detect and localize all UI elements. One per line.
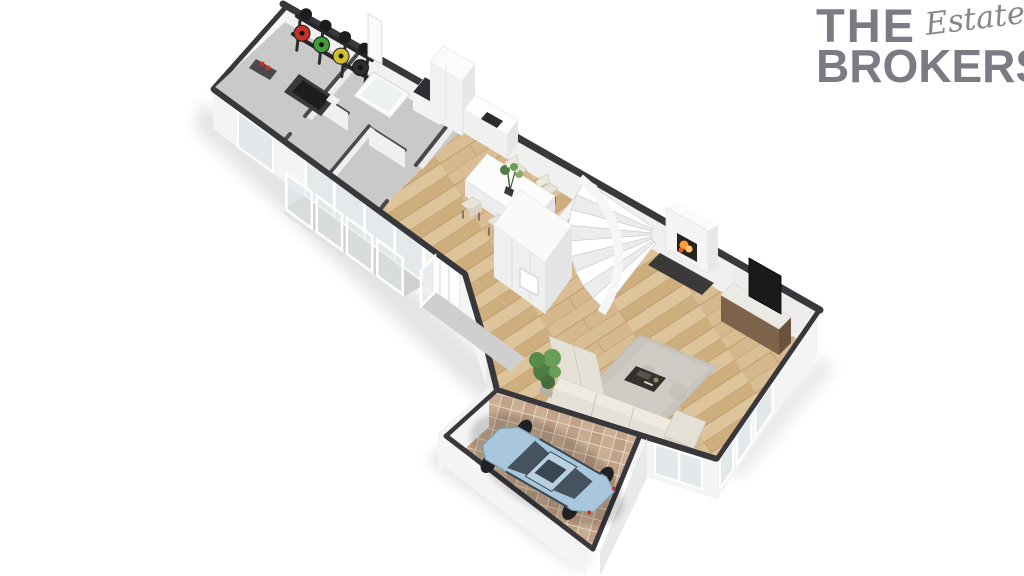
floor-plan-stage: THE Estate BROKERS [0, 0, 1024, 576]
brand-word-estate: Estate [923, 0, 1024, 41]
brand-logo: THE Estate BROKERS [816, 2, 1016, 89]
brand-word-brokers: BROKERS [816, 43, 1016, 89]
